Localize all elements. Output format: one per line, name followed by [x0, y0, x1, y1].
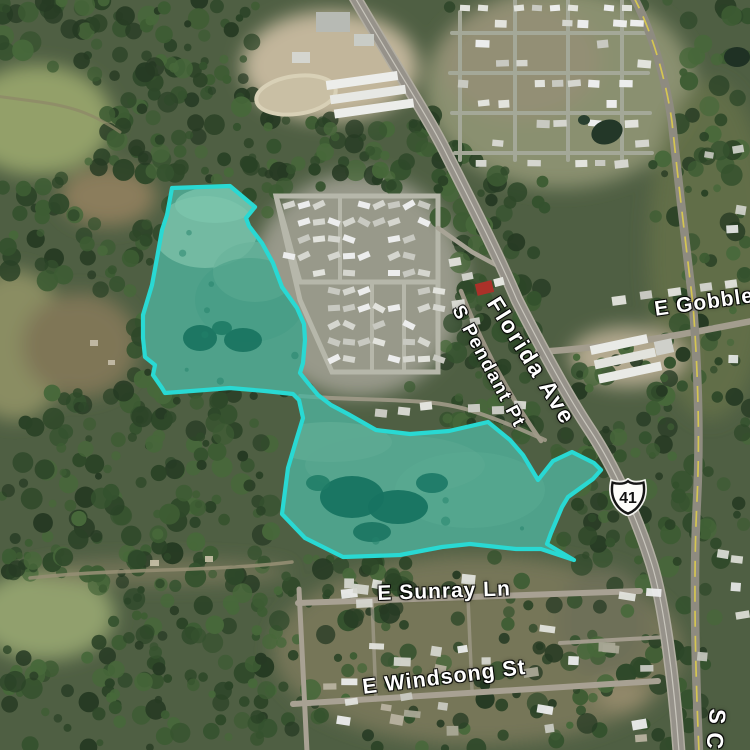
- map-viewport[interactable]: Florida Ave S Pendant Pt E Gobbler E Sun…: [0, 0, 750, 750]
- road-label-s-street-partial: S C: [700, 708, 731, 750]
- us-route-41-shield: 41: [609, 478, 647, 516]
- road-label-e-sunray-ln: E Sunray Ln: [377, 577, 511, 606]
- parcel-overlay-layer: [0, 0, 750, 750]
- shield-number: 41: [619, 490, 637, 507]
